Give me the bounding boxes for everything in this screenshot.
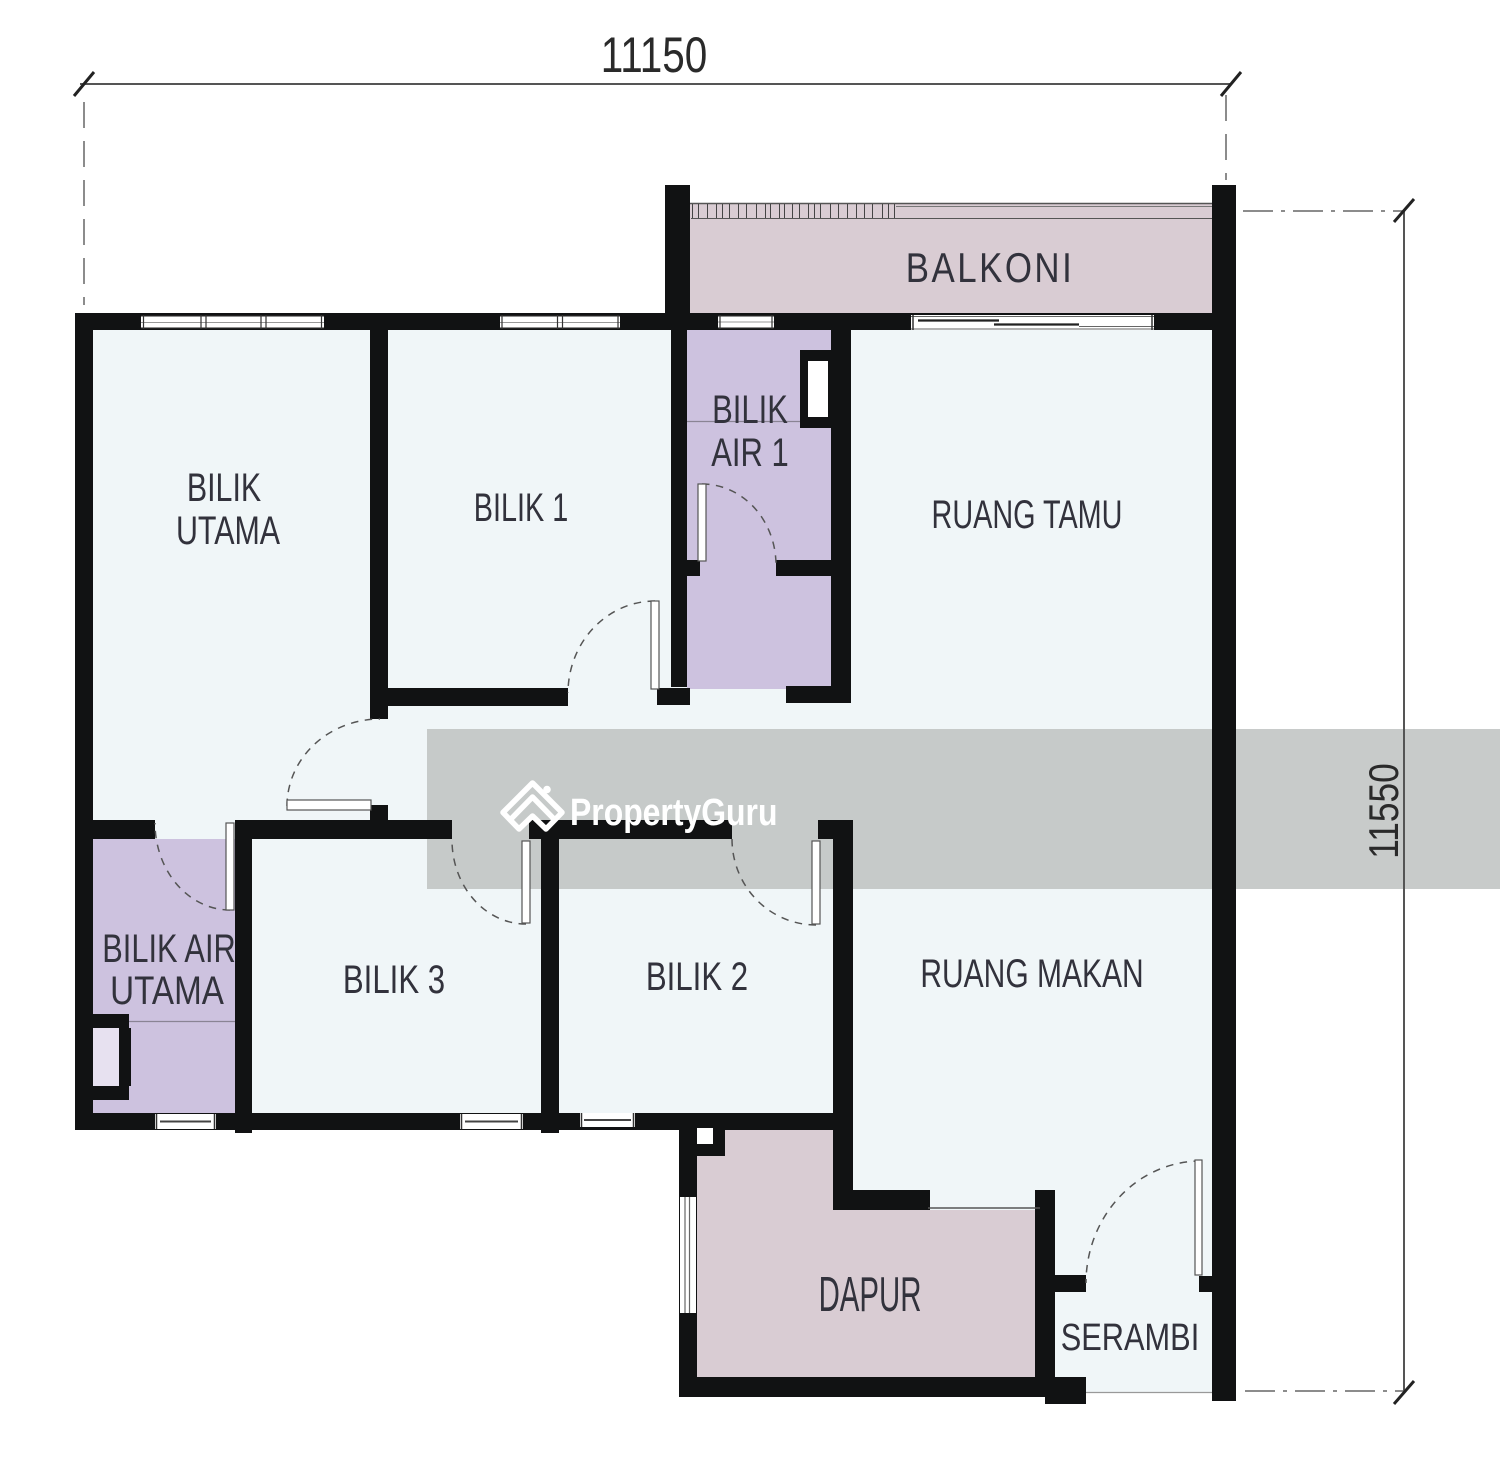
svg-text:UTAMA: UTAMA: [110, 968, 224, 1013]
svg-text:11150: 11150: [601, 27, 708, 83]
svg-text:AIR 1: AIR 1: [711, 430, 788, 475]
svg-text:BILIK 1: BILIK 1: [474, 485, 568, 530]
svg-text:DAPUR: DAPUR: [819, 1266, 922, 1322]
svg-text:UTAMA: UTAMA: [176, 508, 280, 553]
svg-text:11550: 11550: [1361, 763, 1408, 858]
svg-text:BILIK: BILIK: [187, 465, 262, 510]
svg-text:BILIK: BILIK: [712, 387, 788, 432]
svg-text:BILIK AIR: BILIK AIR: [102, 926, 236, 971]
svg-text:BALKONI: BALKONI: [906, 245, 1074, 292]
svg-text:RUANG TAMU: RUANG TAMU: [932, 492, 1123, 537]
svg-text:SERAMBI: SERAMBI: [1061, 1317, 1199, 1359]
svg-text:RUANG MAKAN: RUANG MAKAN: [920, 952, 1143, 996]
svg-text:BILIK 2: BILIK 2: [646, 954, 748, 999]
svg-text:PropertyGuru: PropertyGuru: [570, 791, 777, 833]
svg-text:BILIK 3: BILIK 3: [343, 957, 445, 1002]
